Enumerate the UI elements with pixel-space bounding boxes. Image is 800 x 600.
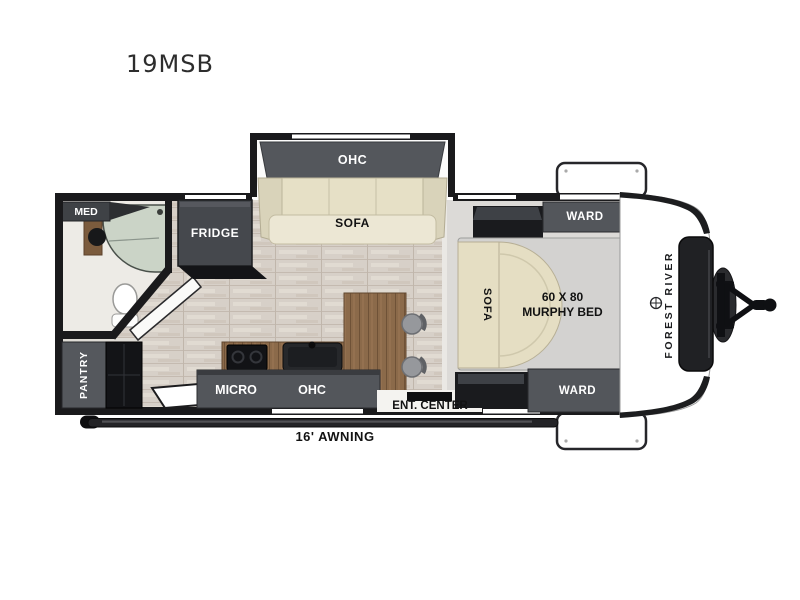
- faucet: [309, 342, 316, 349]
- wardrobe-bottom: [528, 369, 627, 412]
- dresser-face: [473, 207, 542, 220]
- bath-sink: [88, 228, 106, 246]
- step-screw: [564, 439, 567, 442]
- fridge: [178, 200, 252, 266]
- slideout-ohc-cabinet: [260, 142, 445, 178]
- fridge-base: [178, 266, 267, 279]
- shower-head: [157, 209, 163, 215]
- entry-step-top: [557, 163, 646, 197]
- cabinet-lip: [197, 370, 380, 375]
- wardrobe-top: [543, 202, 627, 232]
- window: [272, 409, 363, 414]
- ent-center-tv: [407, 392, 452, 401]
- bathroom-wall: [165, 200, 172, 273]
- step-screw: [635, 169, 638, 172]
- bedroom-sofa: [458, 242, 499, 368]
- floorplan-canvas: 19MSB: [0, 0, 800, 600]
- stool: [402, 357, 422, 377]
- window: [185, 195, 246, 199]
- med-cabinet: [62, 202, 110, 221]
- pantry-cabinet: [62, 342, 106, 408]
- step-screw: [635, 439, 638, 442]
- hitch-ball-socket: [764, 299, 777, 312]
- stool: [402, 314, 422, 334]
- fridge-top: [180, 202, 250, 207]
- floorplan-drawing: [0, 0, 800, 600]
- dresser-face: [458, 374, 524, 384]
- step-screw: [564, 169, 567, 172]
- micro-ohc-cabinet: [197, 370, 380, 408]
- awning-roller: [88, 419, 558, 428]
- slide-wall-left: [250, 133, 257, 197]
- slide-window: [292, 135, 410, 139]
- window: [458, 195, 516, 199]
- bathroom-bottom-wall: [62, 331, 114, 339]
- slide-sofa-seat: [269, 215, 436, 244]
- sink-basin: [288, 347, 337, 367]
- slide-sofa-back: [282, 178, 423, 215]
- entry-step-bottom: [557, 413, 646, 449]
- awning-highlight: [102, 421, 532, 423]
- slide-wall-right: [448, 133, 455, 197]
- rock-guard: [679, 237, 713, 371]
- tongue-jack: [717, 273, 725, 337]
